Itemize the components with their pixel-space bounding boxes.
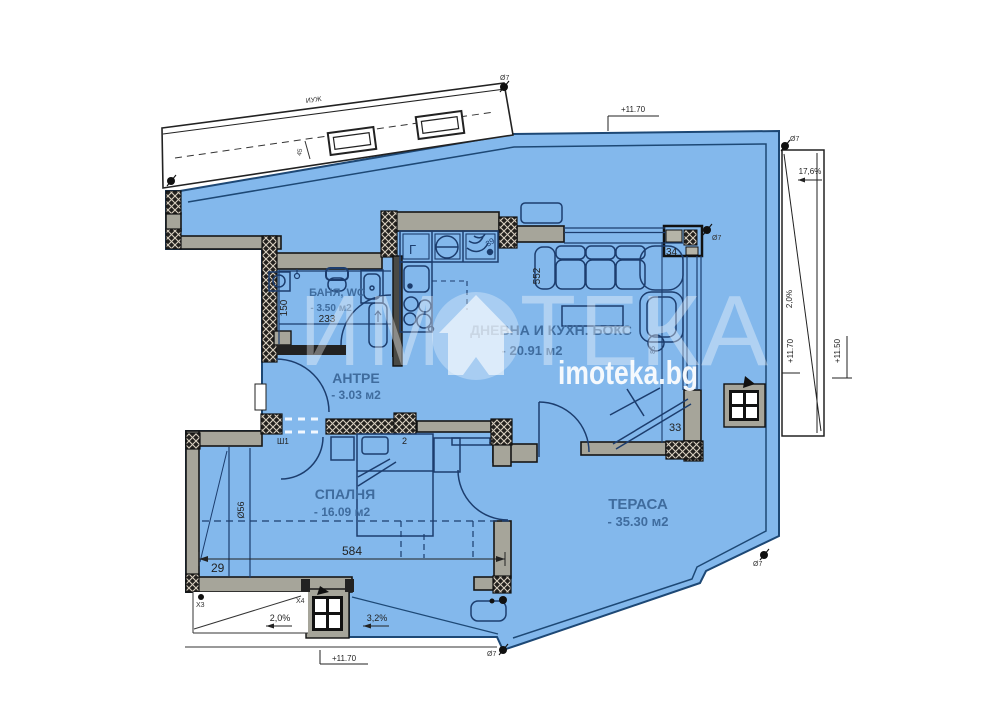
svg-text:2: 2 <box>402 436 407 446</box>
svg-text:Ø56: Ø56 <box>236 501 246 518</box>
svg-text:Ø7: Ø7 <box>712 235 721 242</box>
svg-text:3: 3 <box>489 436 494 446</box>
svg-text:34: 34 <box>666 247 678 258</box>
svg-text:М: М <box>368 275 440 387</box>
svg-text:Ø7: Ø7 <box>790 136 799 143</box>
svg-text:Ш1: Ш1 <box>277 437 289 446</box>
svg-text:- 3.03 м2: - 3.03 м2 <box>331 388 381 402</box>
svg-text:И: И <box>300 275 360 387</box>
svg-text:А: А <box>701 275 768 387</box>
svg-text:+11.70: +11.70 <box>621 105 646 114</box>
svg-text:- 16.09 м2: - 16.09 м2 <box>314 505 371 519</box>
svg-text:29: 29 <box>211 561 225 575</box>
svg-text:150: 150 <box>279 299 290 316</box>
svg-text:33: 33 <box>669 422 681 434</box>
svg-text:+11.50: +11.50 <box>833 338 842 363</box>
svg-text:2,0%: 2,0% <box>785 290 794 308</box>
svg-text:+11.70: +11.70 <box>786 338 795 363</box>
svg-text:X3: X3 <box>196 602 205 609</box>
svg-text:Ø7: Ø7 <box>753 561 762 568</box>
svg-text:17,6%: 17,6% <box>799 167 822 176</box>
svg-text:3,2%: 3,2% <box>367 613 388 623</box>
svg-text:- 35.30 м2: - 35.30 м2 <box>608 514 669 529</box>
svg-text:X4: X4 <box>296 598 305 605</box>
svg-text:ТЕРАСА: ТЕРАСА <box>608 496 668 513</box>
svg-text:Ø7: Ø7 <box>487 651 496 658</box>
svg-text:584: 584 <box>342 544 362 558</box>
svg-text:СПАЛНЯ: СПАЛНЯ <box>315 486 375 502</box>
svg-text:Г: Г <box>409 242 416 257</box>
svg-text:2,0%: 2,0% <box>270 613 291 623</box>
svg-text:+11.70: +11.70 <box>332 654 357 663</box>
svg-text:Ø7: Ø7 <box>500 75 509 82</box>
svg-text:imoteka.bg: imoteka.bg <box>558 354 698 391</box>
